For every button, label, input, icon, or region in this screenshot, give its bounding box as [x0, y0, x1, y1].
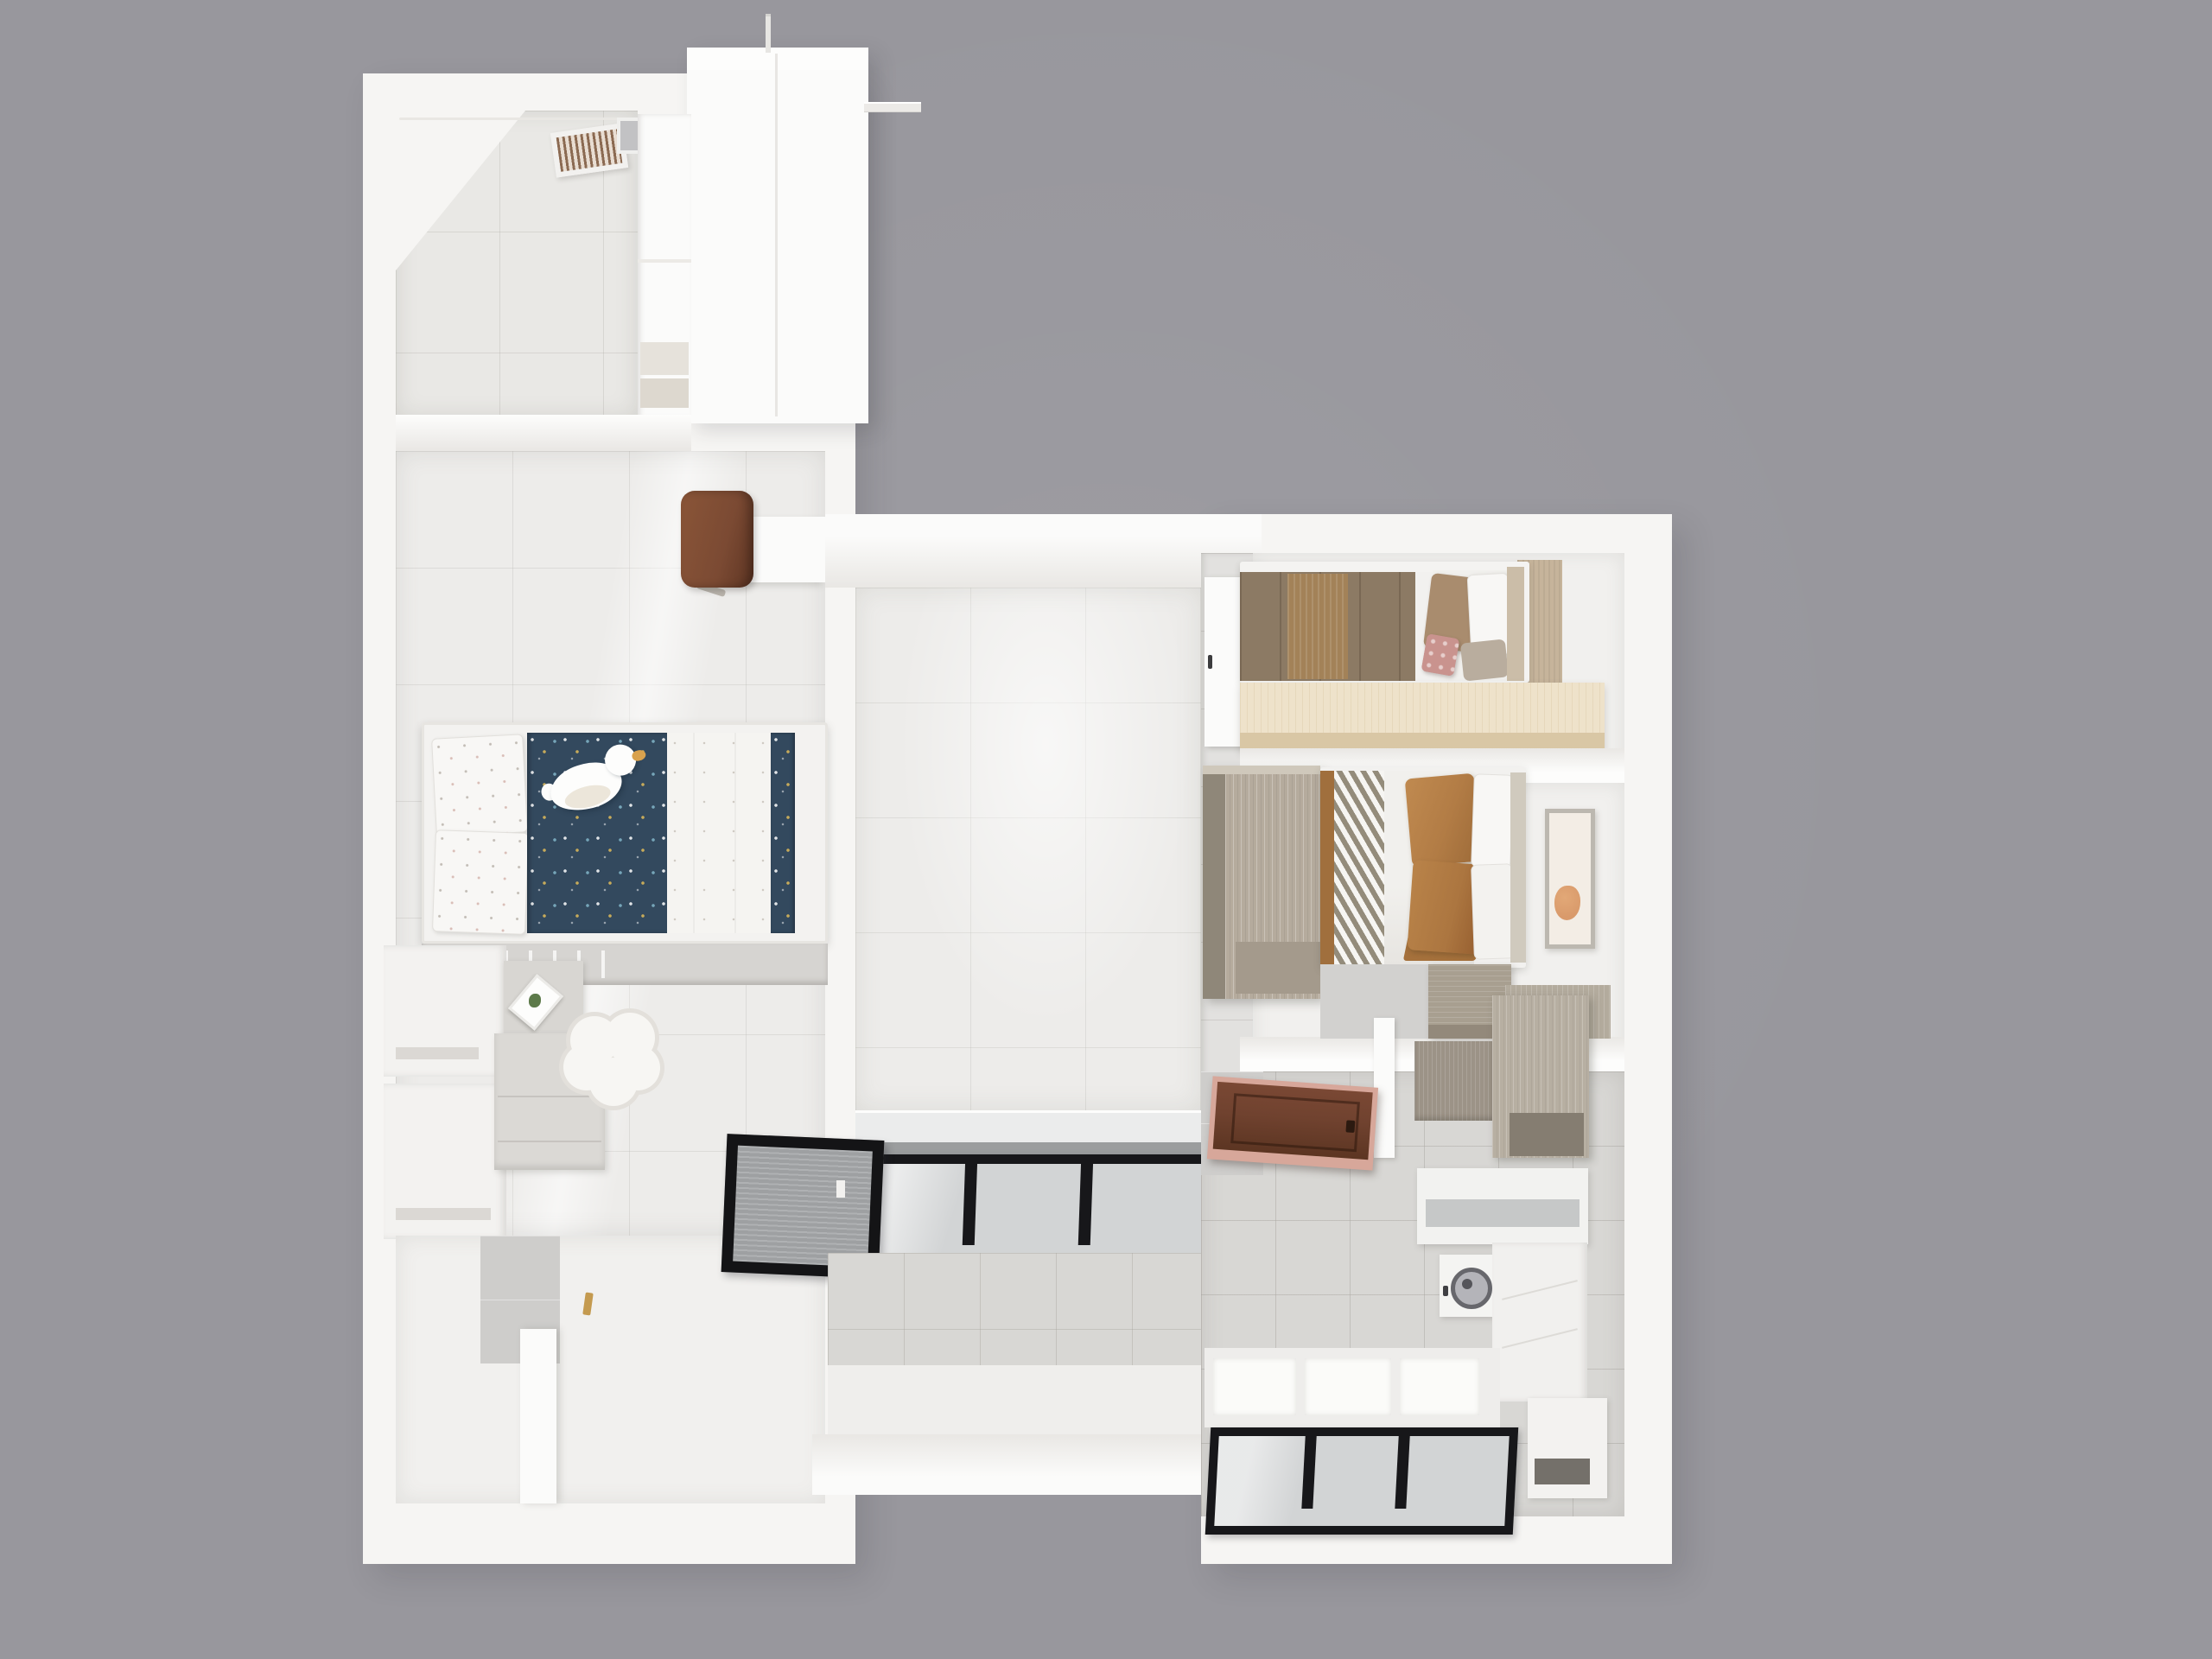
dresser-drawer-seam [498, 1141, 601, 1142]
kitchen-cabinet-inset [1510, 1113, 1584, 1156]
kids-pillow [432, 829, 529, 935]
kitchen-cabinet-dark [1414, 1041, 1494, 1121]
chevron-blanket [1334, 771, 1386, 964]
kitchen-window [1205, 1427, 1518, 1535]
white-pillow [1471, 863, 1516, 960]
wall-art-motif [1554, 886, 1580, 920]
tall-wall-block-seam [775, 54, 778, 416]
small-plant [529, 994, 541, 1007]
floorplan-render [0, 0, 2212, 1659]
wall-art [1545, 809, 1595, 949]
door-handle [1208, 655, 1212, 669]
flower-stool [563, 1007, 660, 1111]
cabinet-open-shelf [1535, 1459, 1590, 1484]
washer-drum [1462, 1279, 1472, 1289]
balcony-closet-shelf [640, 342, 689, 375]
balcony-partition-wall [396, 415, 691, 451]
curtain-rod-pin [766, 14, 771, 53]
gray-cushion [1460, 639, 1509, 681]
window-mullion [1078, 1164, 1093, 1245]
balcony-closet-seam [638, 259, 691, 263]
wardrobe-side-panel [1203, 766, 1225, 999]
window-mullion [963, 1164, 977, 1245]
single-bed-headboard [1507, 567, 1524, 681]
washer-door [1451, 1268, 1492, 1309]
caramel-pillow [1405, 773, 1482, 868]
wall-panel [1213, 1358, 1296, 1415]
balcony-closet-shelf [640, 378, 689, 408]
cabinet-handle-groove [396, 1047, 479, 1059]
screen-latch [836, 1180, 845, 1198]
cabinet-handle-groove [396, 1208, 491, 1220]
washer-knob [1443, 1286, 1448, 1296]
window-mullion [1301, 1436, 1316, 1509]
entry-door [1207, 1076, 1378, 1170]
white-pillow [1471, 773, 1514, 868]
kitchen-counter-band [1426, 1199, 1580, 1227]
curtain-rod [864, 102, 921, 112]
entry-door-handle [1345, 1120, 1355, 1133]
living-room-top-wall [825, 514, 1262, 588]
wardrobe-top-edge [1203, 766, 1320, 774]
tall-wall-block-top-face [687, 48, 868, 70]
wall-panel [1305, 1358, 1391, 1415]
kids-blanket [667, 733, 771, 933]
kitchen-tall-cabinet [1492, 1243, 1587, 1402]
stool-petal [563, 1044, 610, 1090]
master-wardrobe [1203, 766, 1320, 999]
entry-door-panel [1230, 1093, 1360, 1152]
desk-chair [681, 491, 753, 588]
pink-cushion [1421, 633, 1459, 677]
wardrobe-inset [1236, 942, 1320, 994]
cream-sideboard-edge [1240, 733, 1605, 750]
kids-pillow [431, 734, 528, 836]
tall-wall-block [687, 48, 868, 423]
wall-panel [1400, 1358, 1479, 1415]
double-bed-headboard [1510, 772, 1526, 963]
front-balcony-tile-floor [828, 1253, 1201, 1365]
front-balcony-floor [828, 1365, 1201, 1436]
bathroom-floor [396, 1236, 825, 1503]
bathroom-partition [520, 1329, 556, 1503]
window-track [854, 1142, 1205, 1154]
washing-machine [1440, 1255, 1493, 1317]
window-mullion [1395, 1436, 1409, 1509]
living-room-floor [855, 588, 1201, 1110]
single-bed-duvet-fold [1287, 574, 1348, 679]
kids-duvet-edge [771, 733, 795, 933]
living-room-bottom-wall [812, 1434, 1201, 1495]
